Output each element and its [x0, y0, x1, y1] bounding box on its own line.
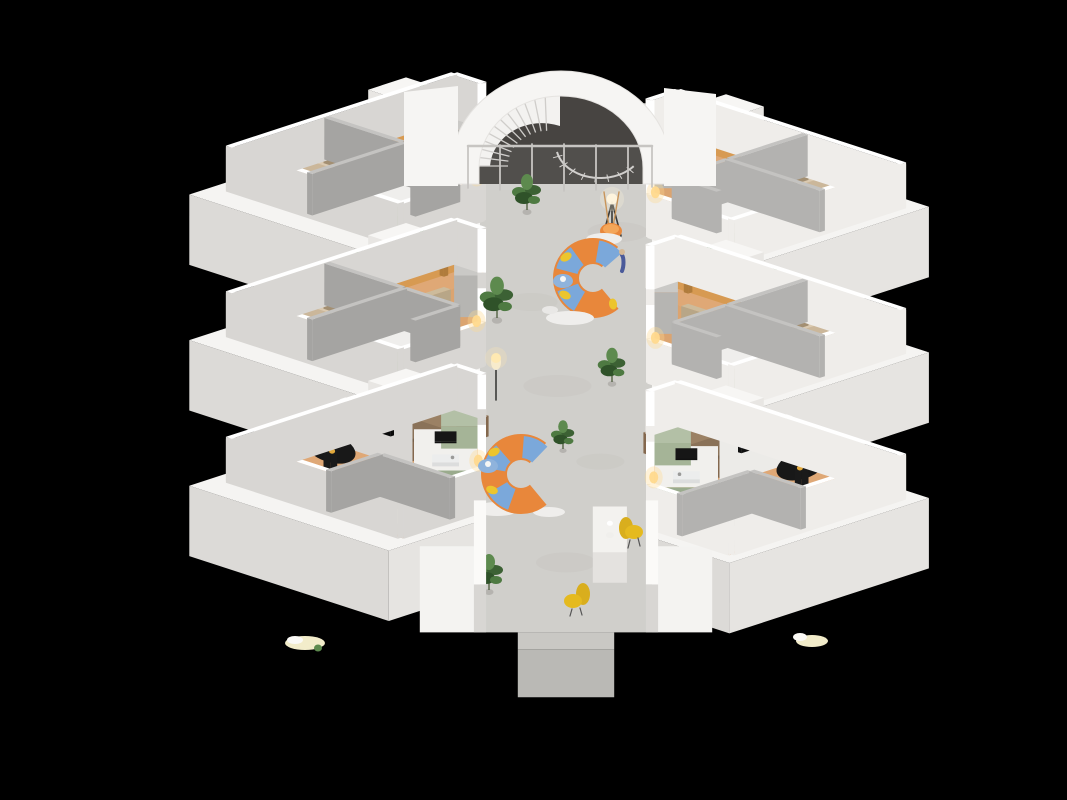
- unit-L2-cooktop-top: [435, 431, 457, 441]
- sofa1-table-flowers: [560, 276, 566, 282]
- unit-L0-partition-bath-left-face: [307, 172, 312, 215]
- concrete-stain-4: [576, 454, 624, 470]
- unit-R2-partition-bath-left-face: [801, 486, 806, 529]
- unit-L2-wall-left-face: [226, 437, 232, 483]
- unit-L0-wall-left-face: [226, 146, 232, 192]
- unit-L2-partition-bath-top-face: [450, 476, 455, 519]
- console-decor-a: [607, 521, 613, 526]
- unit-L2-tv-wall-face: [407, 419, 413, 467]
- arch-shoulder-left: [404, 86, 458, 186]
- bedding-pile-right-white: [793, 633, 807, 641]
- unit-L1-wall-left-face: [226, 291, 232, 337]
- sofa2-table-flowers: [485, 461, 491, 467]
- unit-R2-kitchen-sink-top: [673, 471, 700, 479]
- isometric-floorplan-render: [0, 0, 1067, 800]
- concrete-stain-5: [536, 552, 596, 572]
- unit-R1-partition-bath-right-face: [717, 336, 722, 379]
- glass-partition: [468, 146, 652, 190]
- floorplan-viewport: [0, 0, 1067, 800]
- unit-L2-faucet: [451, 456, 455, 460]
- console-decor-b: [606, 532, 614, 538]
- bedding-plant-left: [314, 645, 322, 652]
- unit-R2-wall-corridor-upper-top: [646, 391, 655, 426]
- unit-R2-kitchen-sink-face: [673, 479, 700, 483]
- arch-shoulder-right: [664, 88, 716, 186]
- unit-R2-partition-bath-top-face: [677, 493, 682, 536]
- entrance-wall-left-top: [474, 500, 486, 584]
- unit-R0-partition-bath-left-face: [820, 189, 825, 232]
- unit-R1-wall-corridor-upper-top: [646, 246, 655, 290]
- yellow-armchair2-seat: [564, 594, 582, 608]
- hanging-chair-cushion: [603, 224, 619, 234]
- yellow-armchair1-seat: [625, 525, 643, 539]
- unit-R2-faucet: [678, 472, 682, 476]
- unit-R2-wall-left-face: [900, 454, 906, 500]
- unit-L1-wall-sconce-light: [472, 315, 481, 327]
- standing-figure: [622, 255, 624, 271]
- unit-R0-partition-bath-right-face: [717, 190, 722, 233]
- unit-L1-partition-bath-left-face: [307, 318, 312, 361]
- unit-R2-wall-sconce-light: [649, 471, 658, 483]
- entrance-threshold: [518, 632, 614, 649]
- unit-L2-kitchen-sink-face: [432, 462, 459, 466]
- unit-L2-partition-bath-left-face: [326, 470, 331, 513]
- corridor-console-table-face: [593, 552, 627, 582]
- standing-figure-head: [619, 249, 625, 255]
- unit-L2-wall-corridor-upper-top: [478, 375, 487, 410]
- unit-R1-partition-bath-left-face: [820, 335, 825, 378]
- unit-R1-wall-left-face: [900, 308, 906, 354]
- unit-L2-cooktop-face: [435, 442, 457, 444]
- concrete-stain-3: [523, 375, 591, 397]
- entrance-slab-right: [652, 546, 712, 632]
- tripod-lamp-glow: [600, 187, 624, 211]
- unit-R0-wall-sconce-light: [651, 186, 660, 198]
- unit-R0-wall-left-face: [900, 162, 906, 208]
- entrance-wall-left-face: [474, 584, 486, 632]
- bedding-pile-left-white: [287, 636, 303, 644]
- sofa1-rock-decor-c: [542, 306, 558, 314]
- unit-R2-cooktop-top: [676, 448, 698, 458]
- entrance-slab-left: [420, 546, 480, 632]
- unit-R2-cooktop-face: [676, 459, 698, 461]
- floor-lamp-glow: [485, 347, 507, 369]
- entrance-wall-right-face: [646, 584, 658, 632]
- unit-R1-wall-sconce-light: [651, 332, 660, 344]
- unit-L1-partition-bath-right-face: [410, 319, 415, 362]
- entrance-wall-right-top: [646, 500, 658, 584]
- unit-R2-tv-wall-face: [720, 436, 726, 484]
- unit-L1-wall-corridor-upper-top: [478, 229, 487, 273]
- unit-L2-kitchen-sink-top: [432, 455, 459, 463]
- entrance-threshold-face: [518, 649, 614, 697]
